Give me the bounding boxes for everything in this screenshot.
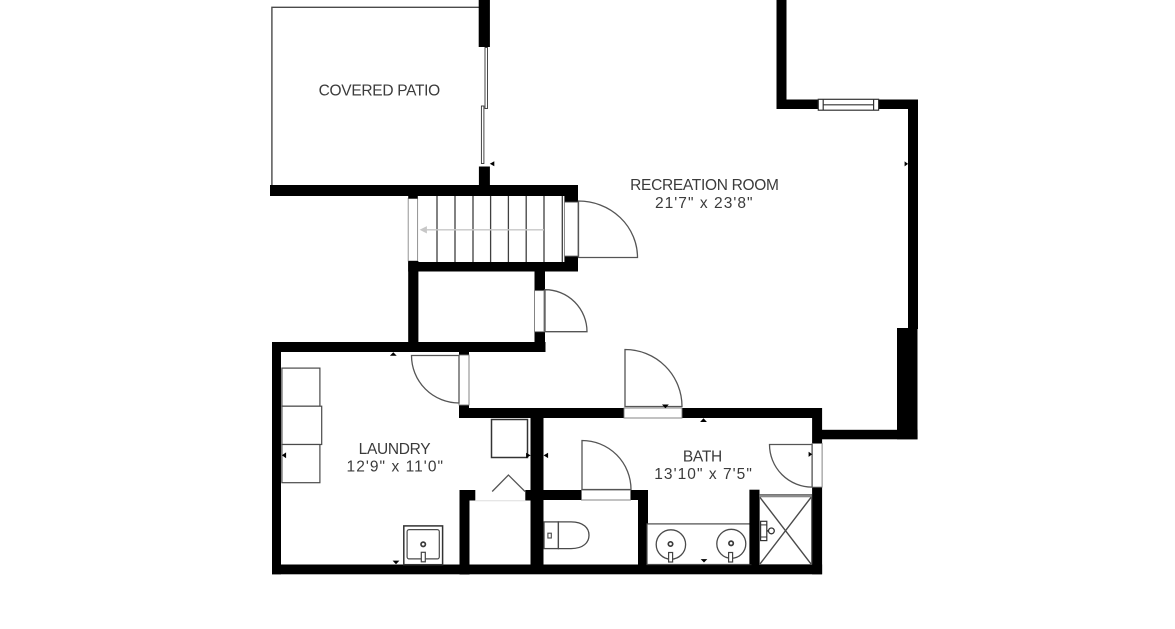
svg-text:12'9" x 11'0": 12'9" x 11'0" [347,459,445,476]
svg-text:13'10" x 7'5": 13'10" x 7'5" [654,466,753,483]
svg-text:LAUNDRY: LAUNDRY [359,441,431,458]
svg-text:21'7" x 23'8": 21'7" x 23'8" [655,195,754,212]
svg-text:RECREATION ROOM: RECREATION ROOM [630,177,779,194]
svg-text:BATH: BATH [683,449,722,466]
svg-text:COVERED PATIO: COVERED PATIO [319,83,441,100]
